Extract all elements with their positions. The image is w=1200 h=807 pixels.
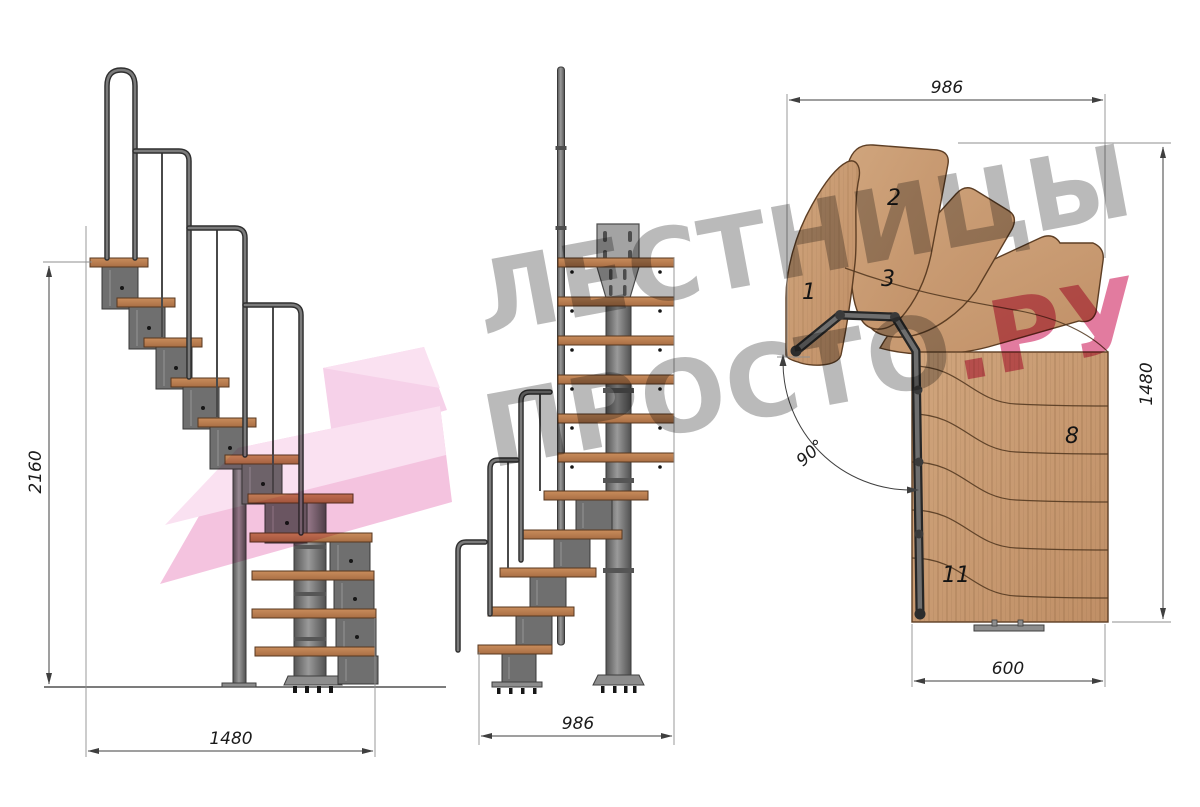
side-dimension-height: 2160 bbox=[26, 262, 92, 684]
plan-base-plate bbox=[974, 625, 1044, 631]
step-number-8: 8 bbox=[1065, 424, 1079, 449]
step-number-11: 11 bbox=[942, 563, 970, 588]
dimension-986-front-label: 986 bbox=[562, 714, 595, 734]
side-upper-modules bbox=[102, 267, 246, 469]
staircase-drawing-canvas: 2160 1480 bbox=[0, 0, 1200, 807]
plan-dimension-bottom: 600 bbox=[912, 624, 1105, 687]
dimension-90deg-label: 90° bbox=[793, 436, 829, 471]
dimension-986-plan-label: 986 bbox=[931, 78, 964, 98]
dimension-600-label: 600 bbox=[992, 659, 1024, 679]
dimension-2160-label: 2160 bbox=[26, 450, 46, 493]
dimension-1480-side-label: 1480 bbox=[209, 729, 252, 749]
